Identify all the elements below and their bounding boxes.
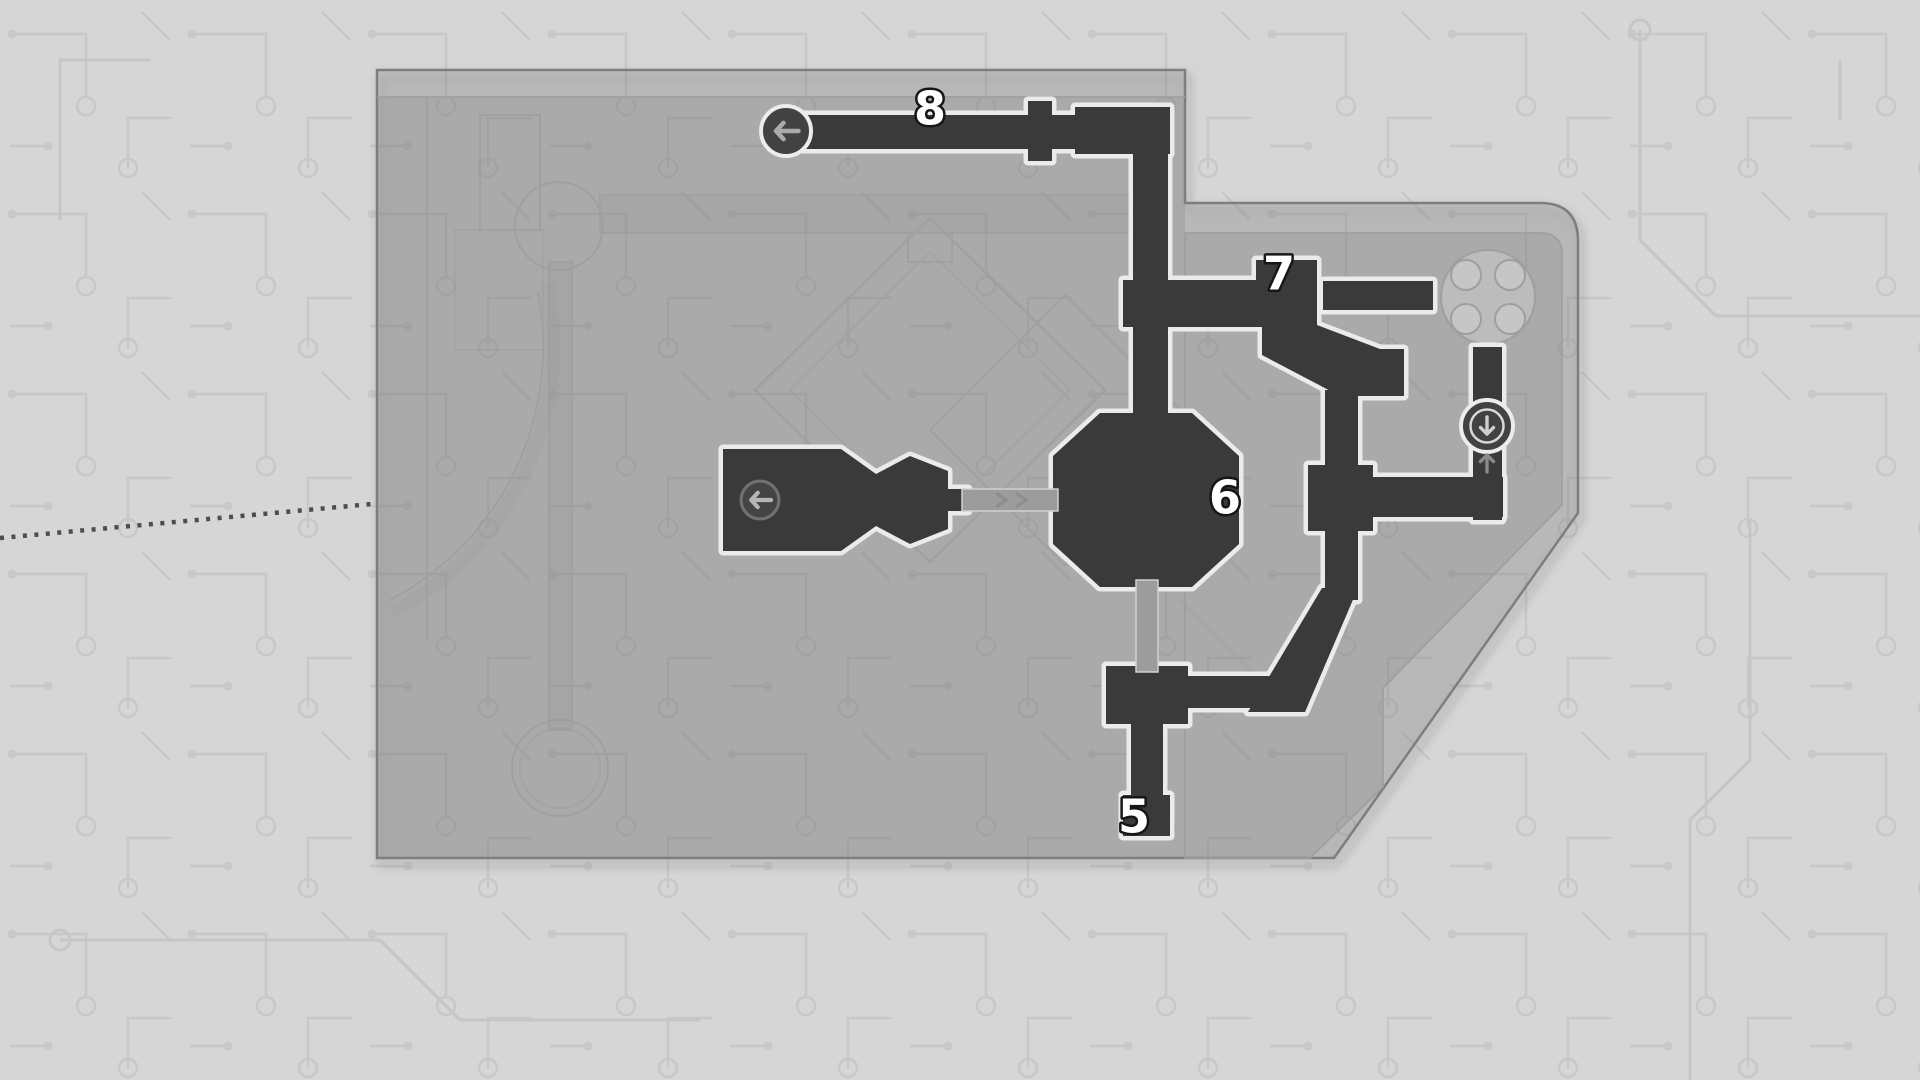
exit-marker-top[interactable] (761, 106, 811, 156)
level-map-canvas[interactable]: 8765 (0, 0, 1920, 1080)
map-label-point-6: 6 (1209, 471, 1241, 525)
map-label-point-8: 8 (914, 82, 946, 136)
elevator-marker[interactable] (1461, 400, 1513, 452)
rotor-platform (1441, 250, 1535, 344)
game-screen: 8765 (0, 0, 1920, 1080)
exit-marker-room[interactable] (741, 481, 779, 519)
map-label-point-7: 7 (1263, 247, 1295, 301)
map-label-point-5: 5 (1118, 790, 1150, 844)
